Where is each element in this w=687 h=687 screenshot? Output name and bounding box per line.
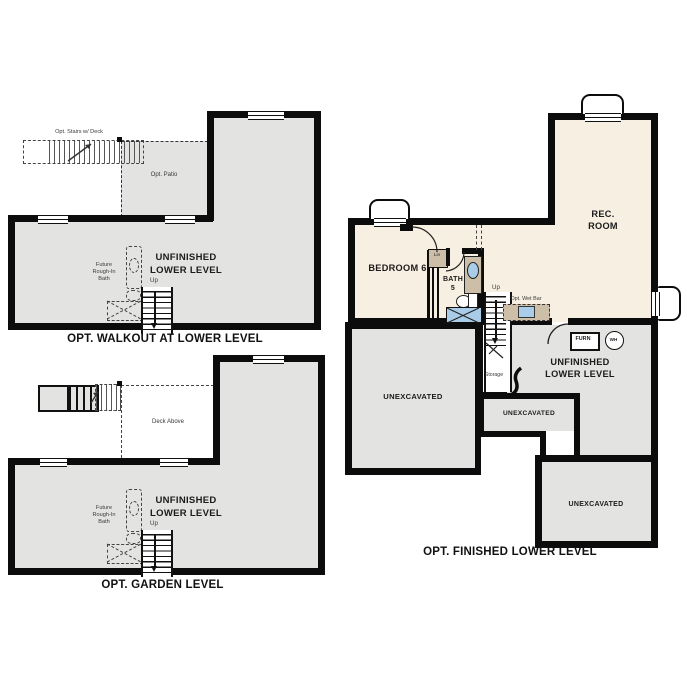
walkout-caption: OPT. WALKOUT AT LOWER LEVEL — [20, 333, 310, 345]
wall — [8, 568, 141, 575]
finished-unfinished-label: UNFINISHED LOWER LEVEL — [520, 356, 640, 380]
wall — [574, 393, 580, 461]
storage-label: Storage — [480, 372, 508, 379]
up-label: Up — [146, 277, 162, 285]
future-bath-label: Future Rough-In Bath — [84, 505, 124, 526]
unfinished-fill-b — [580, 395, 651, 461]
furnace-label: FURN — [570, 336, 596, 343]
future-sink-icon — [126, 533, 141, 544]
left-unexcavated-label: UNEXCAVATED — [352, 392, 474, 402]
bedroom6-label: BEDROOM 6 — [350, 262, 445, 274]
garden-room-label: UNFINISHED LOWER LEVEL — [136, 495, 236, 520]
wall — [213, 355, 220, 465]
window-icon — [248, 111, 284, 120]
wall — [651, 113, 658, 548]
bottom-unexcavated-label: UNEXCAVATED — [546, 500, 646, 509]
wall — [8, 323, 141, 330]
wet-bar-label: Opt. Wet Bar — [498, 296, 554, 303]
stair-arrow-icon — [154, 291, 156, 324]
wall — [568, 318, 658, 325]
deck-corner-dot — [117, 137, 122, 142]
wall — [207, 111, 214, 221]
wall — [400, 224, 413, 231]
window-well-icon — [581, 94, 624, 114]
future-bath-tub-icon — [107, 544, 143, 564]
rec-room-label: REC. ROOM — [558, 208, 648, 232]
linen-label: Lin — [428, 253, 446, 259]
wall — [345, 322, 481, 329]
stair-arrowhead-icon — [492, 338, 498, 344]
wall — [169, 323, 321, 330]
opt-deck-stairs-icon — [23, 140, 144, 164]
opt-patio-label: Opt. Patio — [134, 172, 194, 180]
finished-caption: OPT. FINISHED LOWER LEVEL — [370, 546, 650, 558]
stair-arrow-icon — [154, 534, 156, 567]
sink-icon — [467, 262, 479, 279]
wall — [478, 431, 546, 437]
window-icon — [585, 113, 621, 122]
water-heater-label: WH — [605, 337, 622, 343]
garden-caption: OPT. GARDEN LEVEL — [20, 579, 305, 591]
wall — [314, 111, 321, 330]
window-icon — [38, 215, 68, 224]
wall — [345, 468, 481, 475]
stairs-icon — [141, 530, 173, 577]
future-sink-icon — [126, 290, 141, 301]
wall — [548, 113, 555, 225]
future-toilet-icon — [129, 258, 139, 273]
floorplan-canvas: Opt. Stairs w/ Deck Opt. Patio UNFINISHE… — [0, 0, 687, 687]
up-label: Up — [146, 520, 162, 528]
wall — [318, 355, 325, 575]
closet-rod-icon — [432, 268, 434, 322]
wall — [8, 458, 15, 575]
middle-unexcavated-label: UNEXCAVATED — [486, 410, 572, 419]
wall — [446, 248, 450, 266]
window-icon — [651, 292, 660, 316]
future-toilet-icon — [129, 501, 139, 516]
wall — [345, 322, 352, 475]
deck-above-label: Deck Above — [138, 419, 198, 427]
wall — [535, 455, 658, 462]
window-well-icon — [369, 199, 410, 219]
future-bath-tub-icon — [107, 301, 143, 321]
up-label: Up — [486, 284, 506, 292]
wet-bar-sink-icon — [518, 306, 535, 318]
wall — [169, 568, 325, 575]
wall — [8, 215, 15, 330]
walkout-room-label: UNFINISHED LOWER LEVEL — [136, 252, 236, 277]
wall — [475, 322, 481, 475]
window-icon — [40, 458, 67, 467]
window-icon — [253, 355, 284, 364]
stair-arrowhead-icon — [151, 323, 157, 329]
opt-stairs-deck-label: Opt. Stairs w/ Deck — [36, 129, 122, 136]
window-well-icon — [658, 286, 681, 321]
window-icon — [165, 215, 195, 224]
wall — [535, 455, 542, 548]
cased-opening-icon — [476, 225, 477, 250]
window-icon — [160, 458, 188, 467]
closet-rod-icon — [437, 268, 439, 322]
deck-corner-dot — [117, 381, 122, 386]
stair-arrowhead-icon — [151, 566, 157, 572]
deck-stair-dashed-icon — [95, 384, 121, 411]
bath5-label: BATH 5 — [440, 275, 466, 293]
future-bath-label: Future Rough-In Bath — [84, 262, 124, 283]
stair-arrow-icon — [495, 300, 497, 340]
stairs-icon — [141, 287, 173, 334]
cased-opening-icon — [481, 225, 482, 250]
wall — [478, 393, 580, 399]
